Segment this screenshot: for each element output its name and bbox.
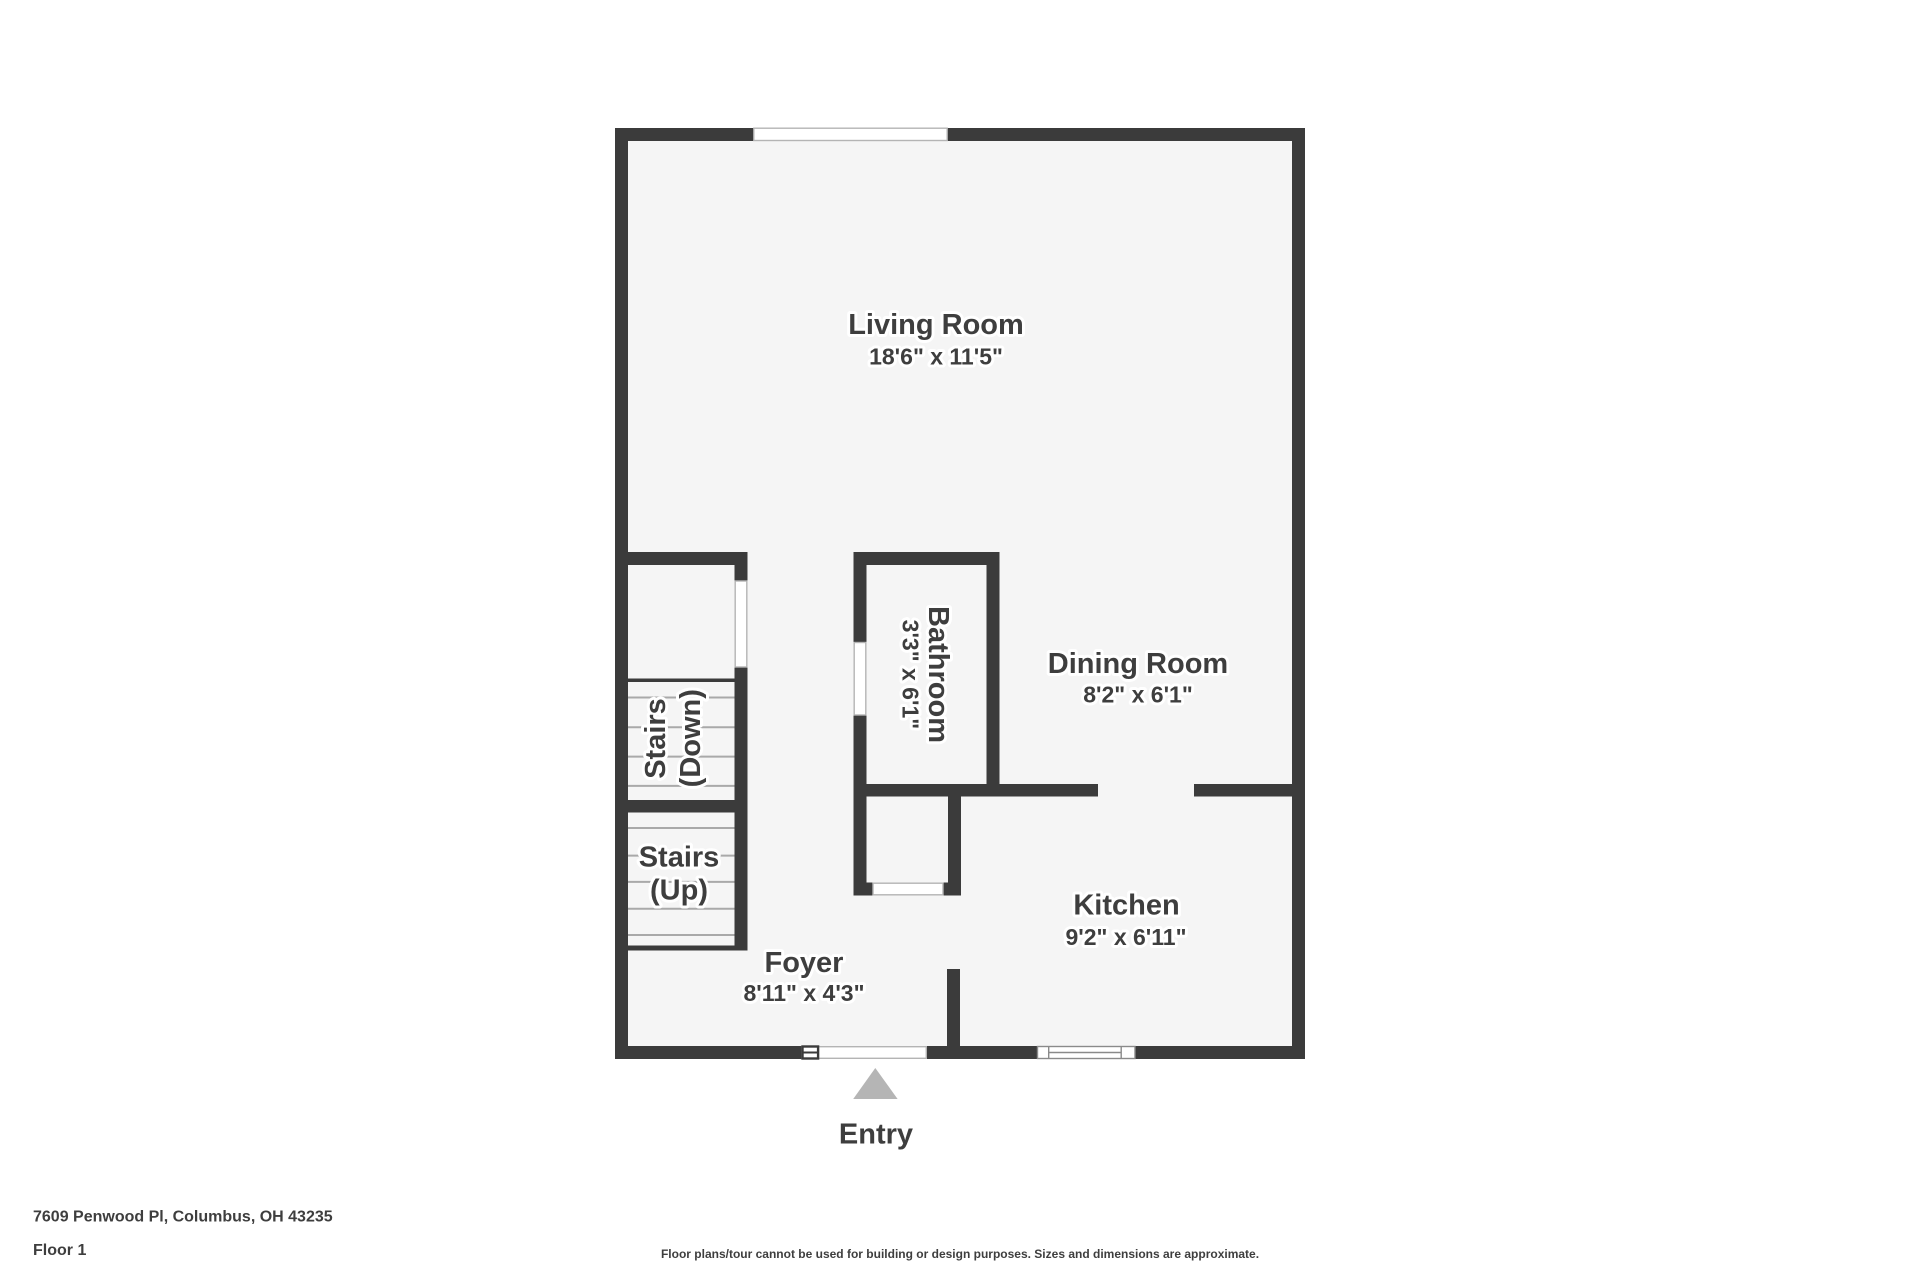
svg-text:9'2" x 6'11": 9'2" x 6'11" bbox=[1065, 924, 1186, 950]
svg-text:Bathroom: Bathroom bbox=[922, 606, 954, 743]
svg-text:8'11" x 4'3": 8'11" x 4'3" bbox=[743, 980, 864, 1006]
svg-text:Stairs: Stairs bbox=[640, 698, 672, 779]
svg-text:Floor plans/tour cannot be use: Floor plans/tour cannot be used for buil… bbox=[661, 1247, 1259, 1261]
svg-text:Dining Room: Dining Room bbox=[1048, 648, 1228, 680]
svg-text:Foyer: Foyer bbox=[765, 947, 844, 979]
svg-text:7609 Penwood Pl, Columbus, OH: 7609 Penwood Pl, Columbus, OH 43235 bbox=[33, 1209, 333, 1226]
svg-text:Living Room: Living Room bbox=[848, 309, 1024, 341]
svg-text:8'2" x 6'1": 8'2" x 6'1" bbox=[1083, 681, 1193, 707]
svg-text:(Down): (Down) bbox=[675, 689, 707, 787]
svg-text:3'3" x 6'1": 3'3" x 6'1" bbox=[897, 620, 923, 730]
svg-text:18'6" x 11'5": 18'6" x 11'5" bbox=[869, 343, 1003, 369]
svg-text:Entry: Entry bbox=[839, 1119, 913, 1151]
svg-text:Stairs: Stairs bbox=[639, 842, 720, 874]
svg-text:Floor 1: Floor 1 bbox=[33, 1242, 86, 1259]
svg-text:Kitchen: Kitchen bbox=[1073, 890, 1179, 922]
svg-text:(Up): (Up) bbox=[650, 875, 708, 907]
